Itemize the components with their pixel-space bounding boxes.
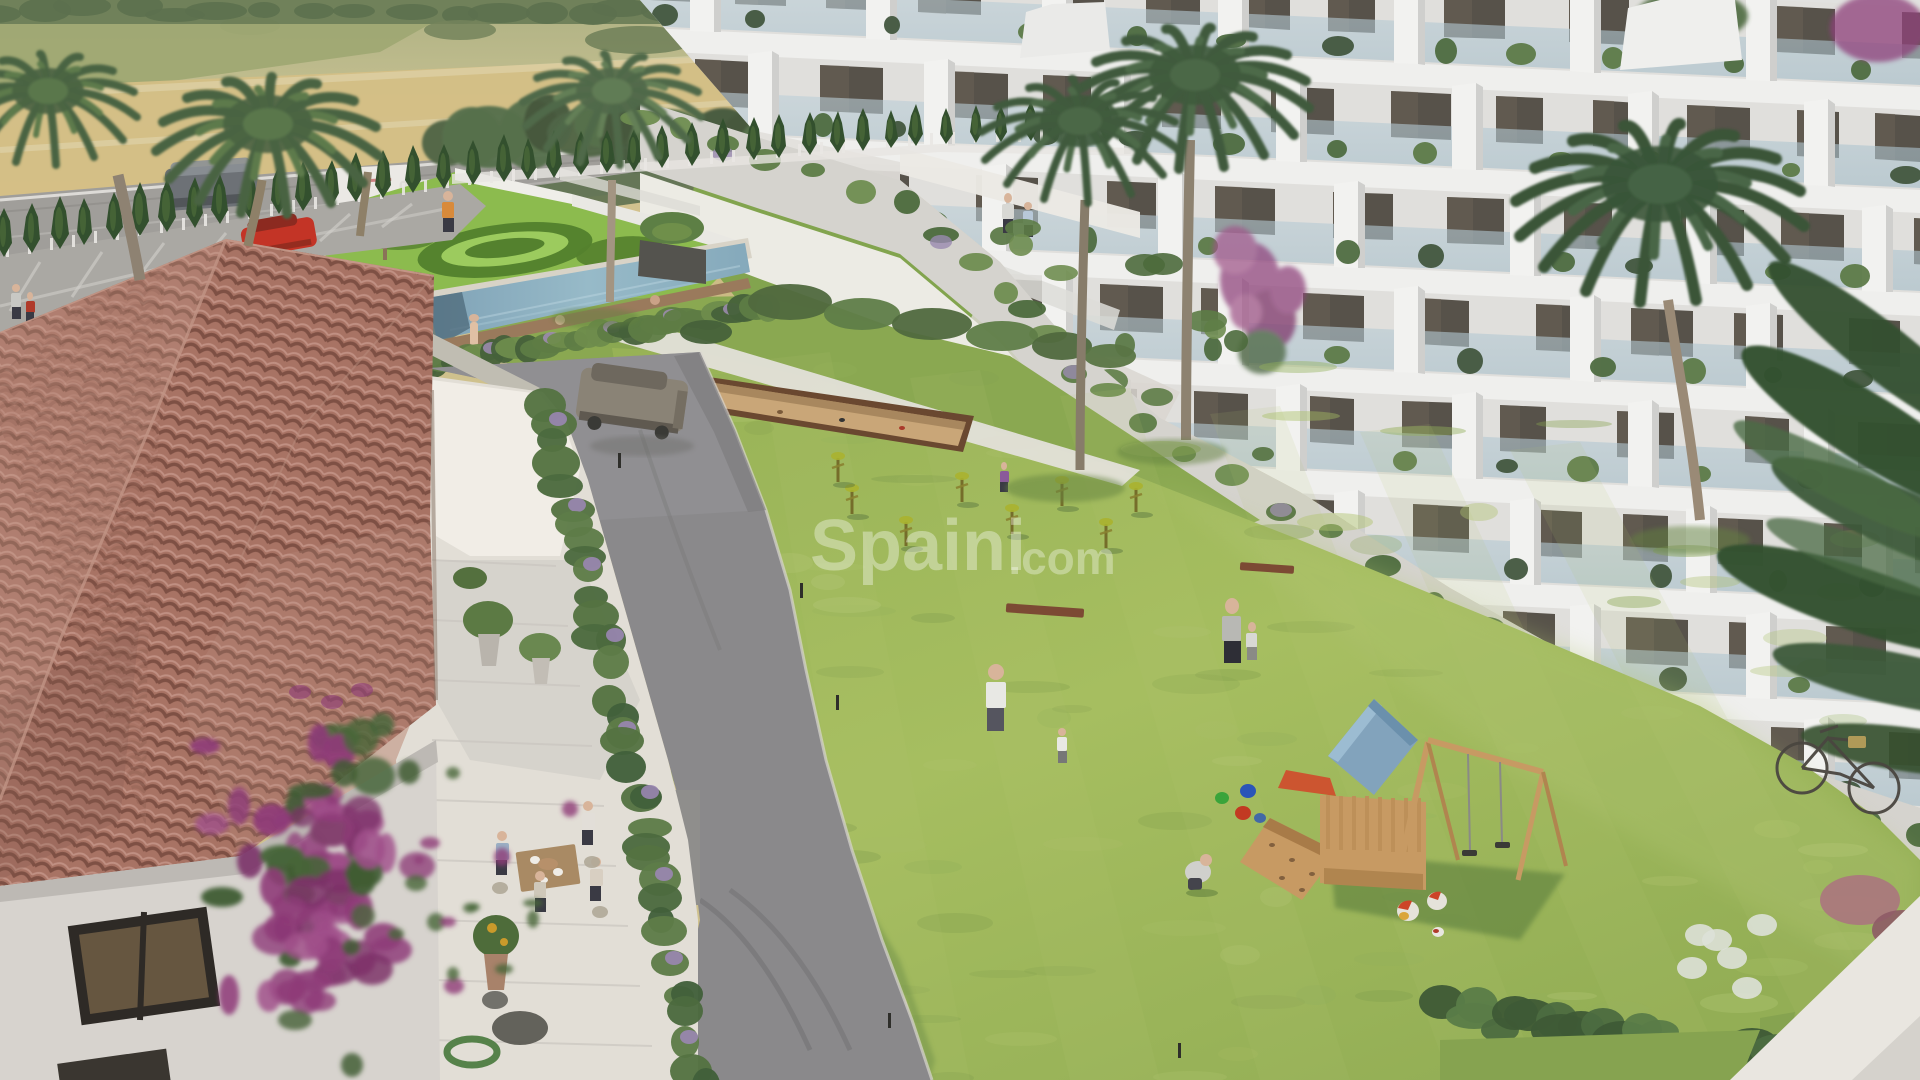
svg-text:.com: .com [1008,532,1115,584]
svg-text:Spaini: Spaini [810,506,1026,586]
